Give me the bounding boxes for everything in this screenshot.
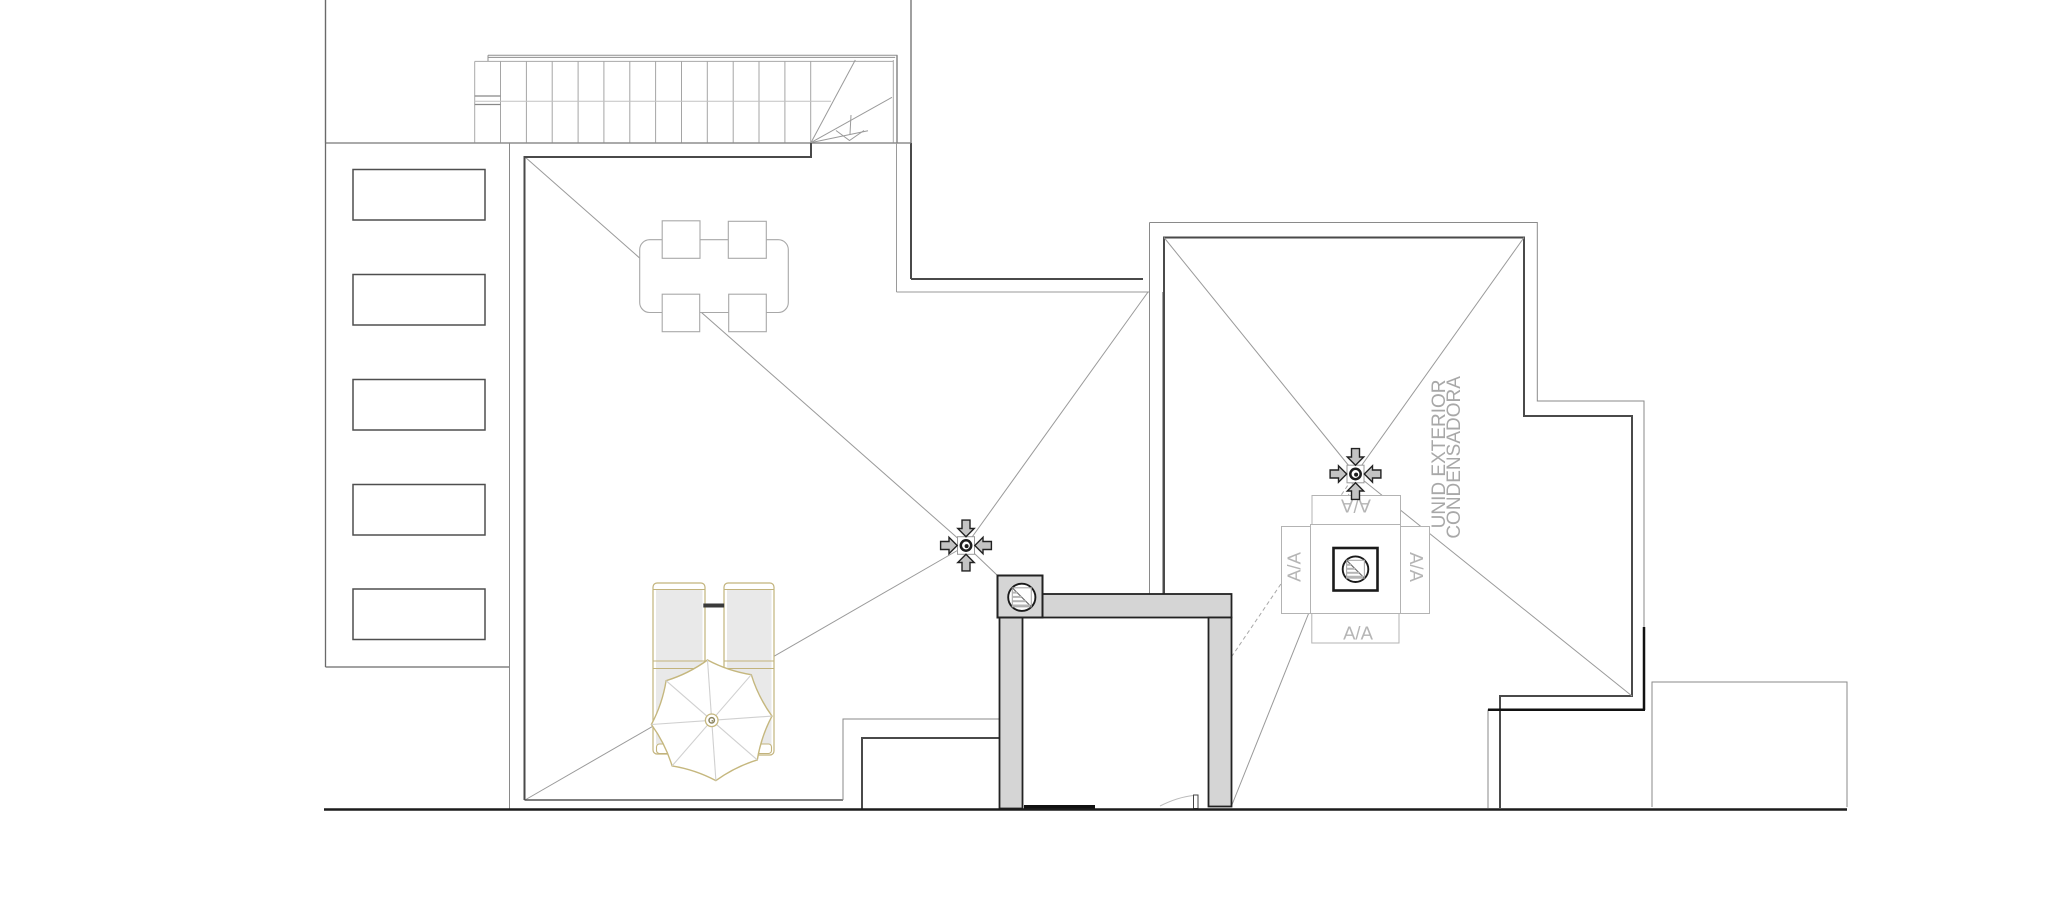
svg-text:A/A: A/A [1284,551,1305,581]
svg-text:A/A: A/A [1343,623,1373,644]
svg-text:A/A: A/A [1406,552,1427,582]
svg-text:CONDENSADORA: CONDENSADORA [1444,376,1465,539]
